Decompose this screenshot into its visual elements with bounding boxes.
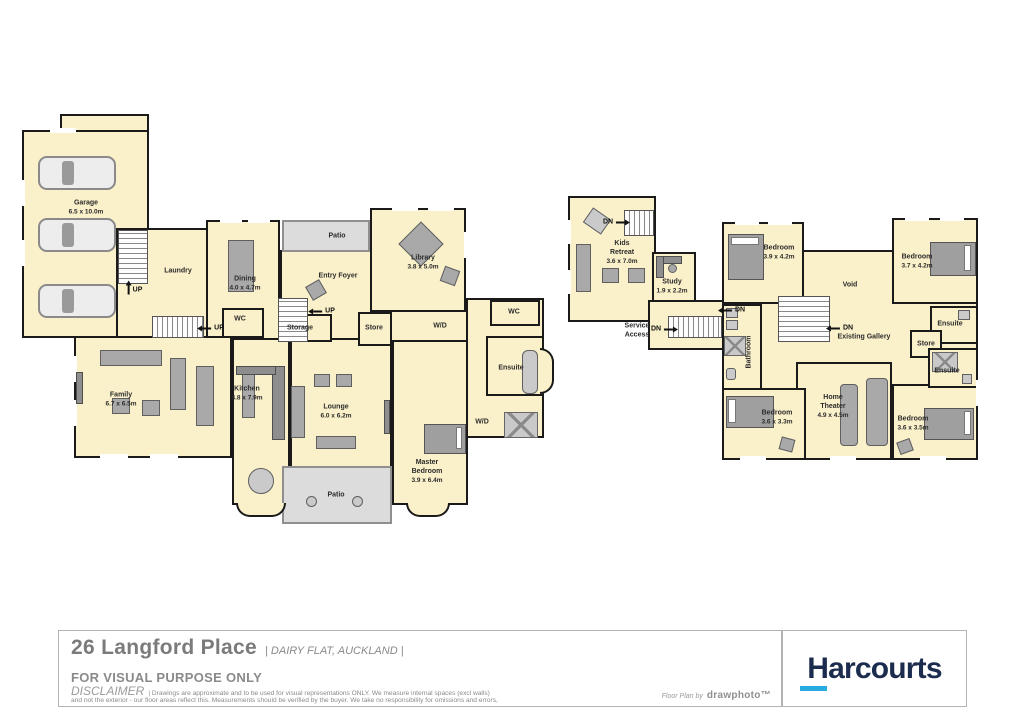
fireplace xyxy=(76,372,83,404)
room-label-ensuite-east: Ensuite xyxy=(930,321,970,330)
room-name: Laundry xyxy=(158,268,198,277)
room-name: W/D xyxy=(428,323,452,332)
window xyxy=(768,220,792,225)
room-name: Dining xyxy=(222,276,268,285)
address-row: 26 Langford Place | DAIRY FLAT, AUCKLAND… xyxy=(71,636,404,660)
room-label-wd-master: W/D xyxy=(470,419,494,428)
left-arrow-icon xyxy=(723,309,732,311)
ensuite-east-basin xyxy=(958,310,970,320)
room-label-existing-gallery: Existing Gallery xyxy=(829,334,899,343)
stair-label-dn-kids: DN xyxy=(603,219,625,226)
room-label-ensuite-south: Ensuite xyxy=(927,368,967,377)
room-name: Master Bedroom xyxy=(405,459,449,477)
room-label-store-upper: Store xyxy=(911,341,941,350)
room-label-void: Void xyxy=(835,282,865,291)
room-name: Store xyxy=(911,341,941,350)
room-name: Lounge xyxy=(313,404,359,413)
room-name: Void xyxy=(835,282,865,291)
breakfast-table xyxy=(248,468,274,494)
room-dims: 6.7 x 6.5m xyxy=(98,400,144,408)
car-windshield xyxy=(62,161,74,185)
property-location: | DAIRY FLAT, AUCKLAND | xyxy=(265,645,404,657)
car-windshield xyxy=(62,289,74,313)
window xyxy=(566,220,571,244)
room-dims: 3.9 x 6.4m xyxy=(405,477,449,485)
room-label-ensuite: Ensuite xyxy=(491,365,531,374)
tv-cabinet xyxy=(384,400,390,434)
room-name: W/D xyxy=(470,419,494,428)
bed-sw-pillow xyxy=(728,399,736,423)
patio-table-2 xyxy=(352,496,363,507)
car-3 xyxy=(38,284,116,318)
window xyxy=(940,216,964,221)
room-label-garage: Garage6.5 x 10.0m xyxy=(60,200,112,217)
window xyxy=(392,206,418,211)
room-dims: 4.9 x 4.5m xyxy=(815,412,851,420)
up-arrow-icon xyxy=(128,286,130,295)
stair-text: DN xyxy=(843,325,853,332)
room-dims: 1.9 x 2.2m xyxy=(652,287,692,295)
gallery-stairs xyxy=(778,296,830,342)
lounge-armchair xyxy=(314,374,330,387)
room-label-home-theater: Home Theater4.9 x 4.5m xyxy=(815,394,851,420)
room-label-family: Family6.7 x 6.5m xyxy=(98,392,144,409)
purpose-statement: FOR VISUAL PURPOSE ONLY xyxy=(71,670,262,685)
garage-stairs xyxy=(118,230,148,284)
kitchen-counter xyxy=(272,366,285,440)
harcourts-logo: Harcourts xyxy=(783,631,966,706)
room-label-bedroom-ne: Bedroom3.7 x 4.2m xyxy=(895,254,939,271)
room-dims: 4.0 x 4.7m xyxy=(222,284,268,292)
stair-label-dn-service: DN xyxy=(651,326,673,333)
stair-text: DN xyxy=(603,219,613,226)
shower-tray xyxy=(504,412,538,438)
bathroom-shower xyxy=(724,336,746,356)
window xyxy=(905,216,929,221)
stair-label-up-mid: UP xyxy=(202,325,224,332)
family-sofa-2 xyxy=(170,358,186,410)
room-label-entry-foyer: Entry Foyer xyxy=(311,273,365,282)
window xyxy=(428,206,454,211)
entry-stairs xyxy=(278,298,308,342)
disclaimer-text-line2: and not the exterior - our floor areas r… xyxy=(71,697,498,704)
bay-window-ensuite xyxy=(540,348,554,394)
lounge-armchair-2 xyxy=(336,374,352,387)
room-label-bedroom-nw: Bedroom3.9 x 4.2m xyxy=(757,245,801,262)
room-name: Bedroom xyxy=(891,416,935,425)
kitchen-counter-2 xyxy=(236,366,276,375)
credit-brand: drawphoto™ xyxy=(707,690,771,701)
room-name: WC xyxy=(230,316,250,325)
stair-text: DN xyxy=(651,326,661,333)
lounge-sofa xyxy=(291,386,305,438)
bed-nw-pillow xyxy=(731,237,759,245)
room-name: WC xyxy=(504,309,524,318)
master-bed-pillow xyxy=(456,427,462,449)
room-dims: 3.8 x 5.0m xyxy=(400,263,446,271)
window xyxy=(20,180,25,206)
left-arrow-icon xyxy=(202,327,211,329)
room-name: Kids Retreat xyxy=(604,240,640,258)
bed-se-pillow xyxy=(964,411,971,435)
disclaimer-text-line1: | Drawings are approximate and to be use… xyxy=(148,690,489,697)
harcourts-wordmark: Harcourts xyxy=(807,652,942,686)
car-2 xyxy=(38,218,116,252)
window xyxy=(735,220,759,225)
bathroom-basin-2 xyxy=(726,320,738,330)
room-name: Patio xyxy=(321,492,351,501)
study-desk-2 xyxy=(656,256,664,278)
stair-label-up-entry: UP xyxy=(313,308,335,315)
room-label-bathroom: Bathroom xyxy=(746,335,755,368)
harcourts-logo-box: Harcourts xyxy=(782,630,967,707)
room-dims: 3.6 x 3.3m xyxy=(755,418,799,426)
room-dims: 3.7 x 4.2m xyxy=(895,262,939,270)
room-label-bedroom-sw: Bedroom3.6 x 3.3m xyxy=(755,410,799,427)
car-windshield xyxy=(62,223,74,247)
room-label-kitchen: Kitchen4.8 x 7.9m xyxy=(224,386,270,403)
window xyxy=(248,218,270,223)
room-dims: 3.6 x 3.5m xyxy=(891,424,935,432)
room-dims: 3.9 x 4.2m xyxy=(757,253,801,261)
room-name: Ensuite xyxy=(491,365,531,374)
room-name: Garage xyxy=(60,200,112,209)
room-label-master-bedroom: Master Bedroom3.9 x 6.4m xyxy=(405,459,449,485)
stair-text: DN xyxy=(735,307,745,314)
room-name: Existing Gallery xyxy=(829,334,899,343)
study-chair xyxy=(668,264,677,273)
room-name: Kitchen xyxy=(224,386,270,395)
room-label-dining: Dining4.0 x 4.7m xyxy=(222,276,268,293)
room-name: Ensuite xyxy=(930,321,970,330)
window xyxy=(464,232,469,258)
theater-recliner-row-2 xyxy=(866,378,888,446)
bay-window-kitchen xyxy=(236,503,286,517)
bed-ne-pillow xyxy=(964,245,971,271)
room-name: Service Access xyxy=(619,322,655,340)
family-sofa xyxy=(100,350,162,366)
room-name: Storage xyxy=(279,325,321,334)
room-label-wd-hall: W/D xyxy=(428,323,452,332)
window xyxy=(150,454,178,459)
room-name: Home Theater xyxy=(815,394,851,412)
room-label-kids-retreat: Kids Retreat3.6 x 7.0m xyxy=(604,240,640,266)
window xyxy=(220,218,242,223)
window xyxy=(740,456,766,461)
window xyxy=(830,456,856,461)
bathroom-wc xyxy=(726,368,736,380)
kids-armchair xyxy=(602,268,619,283)
patio-table xyxy=(306,496,317,507)
room-label-service-access: Service Access xyxy=(619,322,655,340)
window xyxy=(100,454,128,459)
kitchen-island xyxy=(196,366,214,426)
disclaimer-label: DISCLAIMER xyxy=(71,684,144,698)
family-armchair-2 xyxy=(142,400,160,416)
room-label-wc-right: WC xyxy=(504,309,524,318)
car-1 xyxy=(38,156,116,190)
window xyxy=(976,380,981,406)
room-name: Bedroom xyxy=(755,410,799,419)
room-label-laundry: Laundry xyxy=(158,268,198,277)
floorplan-credit: Floor Plan by drawphoto™ xyxy=(662,690,771,701)
property-address: 26 Langford Place xyxy=(71,636,257,660)
harcourts-underline-accent xyxy=(800,686,827,691)
room-dims: 6.5 x 10.0m xyxy=(60,208,112,216)
room-label-store: Store xyxy=(358,325,390,334)
room-label-storage: Storage xyxy=(279,325,321,334)
footer-info-box: 26 Langford Place | DAIRY FLAT, AUCKLAND… xyxy=(58,630,782,707)
room-label-bedroom-se: Bedroom3.6 x 3.5m xyxy=(891,416,935,433)
room-name: Store xyxy=(358,325,390,334)
room-label-library: Library3.8 x 5.0m xyxy=(400,255,446,272)
stair-label-dn-gallery: DN xyxy=(831,325,853,332)
room-name: Library xyxy=(400,255,446,264)
room-dims: 6.0 x 6.2m xyxy=(313,412,359,420)
window xyxy=(566,270,571,294)
room-name: Bedroom xyxy=(895,254,939,263)
room-name: Study xyxy=(652,279,692,288)
room-name: Entry Foyer xyxy=(311,273,365,282)
kids-sofa xyxy=(576,244,591,292)
room-label-study: Study1.9 x 2.2m xyxy=(652,279,692,296)
window xyxy=(920,456,946,461)
disclaimer-row: DISCLAIMER | Drawings are approximate an… xyxy=(71,684,490,698)
room-label-patio-bottom: Patio xyxy=(321,492,351,501)
stair-text: UP xyxy=(133,287,143,294)
stair-text: UP xyxy=(325,308,335,315)
room-name: Bedroom xyxy=(757,245,801,254)
room-dims: 4.8 x 7.9m xyxy=(224,394,270,402)
right-arrow-icon xyxy=(616,221,625,223)
credit-prefix: Floor Plan by xyxy=(662,693,703,700)
window xyxy=(50,128,76,133)
right-arrow-icon xyxy=(664,328,673,330)
room-name: Family xyxy=(98,392,144,401)
window xyxy=(20,240,25,266)
lounge-sofa-2 xyxy=(316,436,356,449)
stair-text: UP xyxy=(214,325,224,332)
room-label-patio-top: Patio xyxy=(322,233,352,242)
room-label-wc-mid: WC xyxy=(230,316,250,325)
bay-window-master xyxy=(406,503,450,517)
room-dims: 3.6 x 7.0m xyxy=(604,258,640,266)
left-arrow-icon xyxy=(831,327,840,329)
kids-armchair-2 xyxy=(628,268,645,283)
room-name: Patio xyxy=(322,233,352,242)
room-label-lounge: Lounge6.0 x 6.2m xyxy=(313,404,359,421)
room-name: Bathroom xyxy=(746,335,755,368)
stair-label-up-garage: UP xyxy=(128,286,143,295)
room-name: Ensuite xyxy=(927,368,967,377)
left-arrow-icon xyxy=(313,310,322,312)
stair-label-dn-landing: DN xyxy=(723,307,745,314)
